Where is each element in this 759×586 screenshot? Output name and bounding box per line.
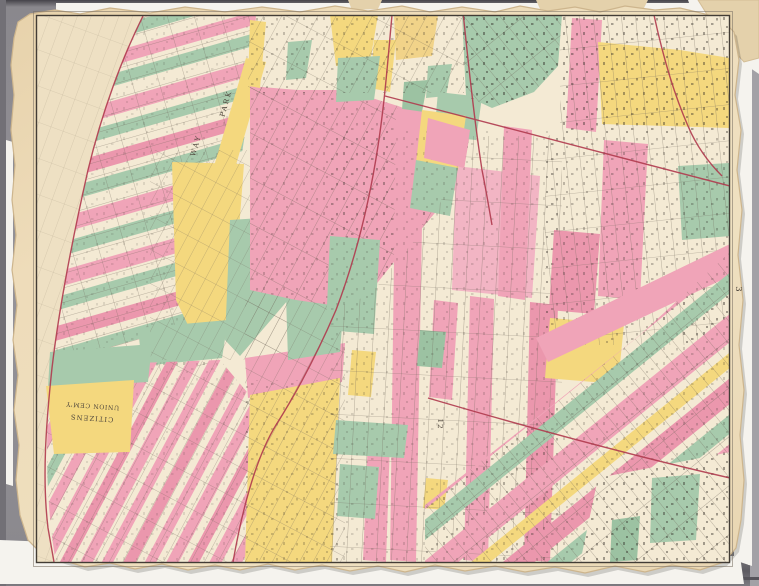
zone-top-right-corner (560, 15, 730, 135)
scanned-atlas-page: CITIZENS UNION CEM'Y (0, 0, 759, 586)
ward-number-label: 12 (436, 418, 444, 429)
atlas-map-plate: CITIZENS UNION CEM'Y (0, 0, 759, 586)
map-content: CITIZENS UNION CEM'Y (0, 0, 759, 586)
plate-number: 3 (733, 286, 743, 291)
